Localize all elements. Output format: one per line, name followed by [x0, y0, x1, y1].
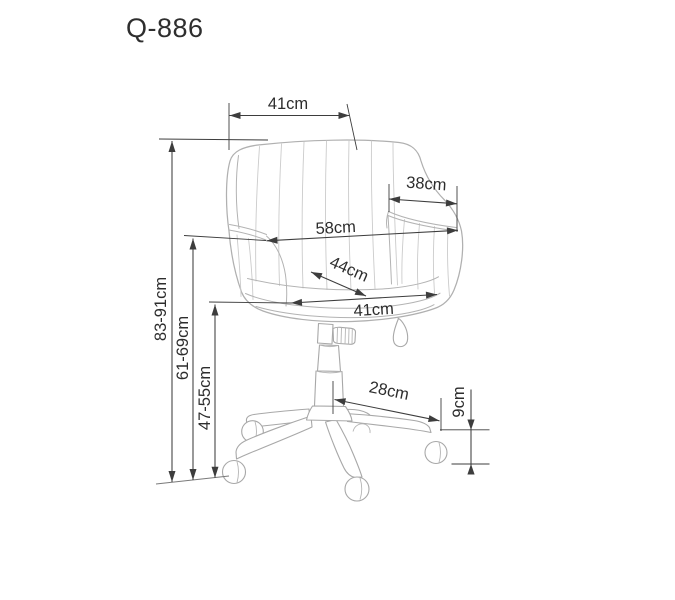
dim-base-leg-length-label: 28cm — [367, 378, 410, 404]
caster-right — [425, 442, 447, 464]
dim-overall-width-label: 58cm — [315, 218, 356, 238]
caster-right-mount — [353, 424, 370, 433]
tilt-lever — [393, 319, 407, 347]
base-cone — [307, 406, 353, 421]
dim-total-height-label: 83-91cm — [152, 277, 170, 341]
dim-backrest-top-width-label: 41cm — [268, 95, 308, 113]
caster-far-left — [223, 461, 246, 484]
base-leg-front — [326, 420, 363, 478]
dim-caster-height-label: 9cm — [450, 386, 468, 417]
dim-armrest-height-label: 61-69cm — [174, 316, 192, 380]
chair-drawing — [156, 140, 463, 501]
gas-lift-upper — [318, 345, 341, 372]
dim-caster-height: 9cm — [440, 386, 490, 474]
dim-armrest-depth-label: 38cm — [406, 174, 448, 195]
gas-lift-lower — [315, 371, 344, 407]
dim-seat-width-label: 41cm — [353, 300, 394, 320]
dim-seat-height-label: 47-55cm — [196, 366, 214, 430]
technical-drawing-page: Q-886 — [0, 0, 675, 600]
seat-stem — [318, 324, 334, 345]
chair-dimension-diagram: 41cm 38cm 58cm 44cm 41cm — [0, 0, 675, 600]
caster-front — [345, 477, 369, 501]
star-base — [223, 406, 448, 501]
